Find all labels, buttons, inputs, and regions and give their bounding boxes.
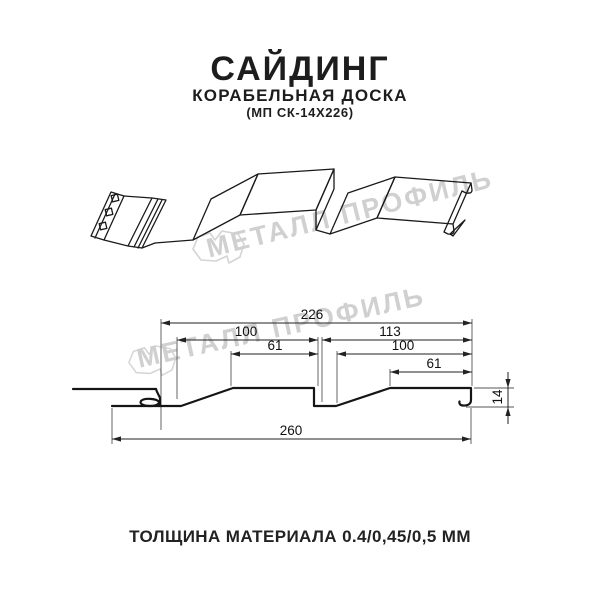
dim-label: 14: [490, 389, 505, 405]
lock-fold: [104, 196, 166, 248]
nail-hole: [105, 208, 113, 216]
arrowhead: [505, 407, 510, 416]
technical-drawing-canvas: МЕТАЛЛ ПРОФИЛЬ МЕТАЛЛ ПРОФИЛЬ: [0, 0, 600, 600]
arrowhead: [390, 369, 399, 374]
arrowhead: [161, 320, 170, 325]
dim-label: 100: [235, 324, 258, 339]
dim-label: 226: [301, 307, 324, 322]
arrowhead: [463, 351, 472, 356]
product-drawing-page: САЙДИНГ КОРАБЕЛЬНАЯ ДОСКА (МП СК-14Х226)…: [0, 0, 600, 600]
nail-hole: [111, 194, 119, 202]
nail-hole: [99, 222, 107, 230]
watermark-upper: МЕТАЛЛ ПРОФИЛЬ: [193, 163, 496, 263]
arrowhead: [337, 351, 346, 356]
arrowhead: [463, 337, 472, 342]
arrowhead: [505, 379, 510, 388]
material-thickness-caption: ТОЛЩИНА МАТЕРИАЛА 0.4/0,45/0,5 ММ: [0, 527, 600, 547]
dim-label: 113: [379, 324, 401, 339]
section-profile-outline: [73, 388, 471, 406]
arrowhead: [112, 436, 121, 441]
dim-label: 61: [267, 338, 282, 353]
dimension-100-right: 100: [337, 338, 472, 357]
dimension-260: 260: [112, 423, 471, 442]
dimension-61-right: 61: [390, 356, 472, 375]
arrowhead: [462, 436, 471, 441]
nail-strip: [91, 192, 124, 240]
dim-label: 100: [392, 338, 415, 353]
arrowhead: [463, 369, 472, 374]
dim-label: 61: [426, 356, 441, 371]
arrowhead: [309, 351, 318, 356]
arrowhead: [322, 337, 331, 342]
arrowhead: [309, 337, 318, 342]
dimension-14: 14: [490, 372, 511, 424]
arrowhead: [463, 320, 472, 325]
dim-label: 260: [280, 423, 303, 438]
